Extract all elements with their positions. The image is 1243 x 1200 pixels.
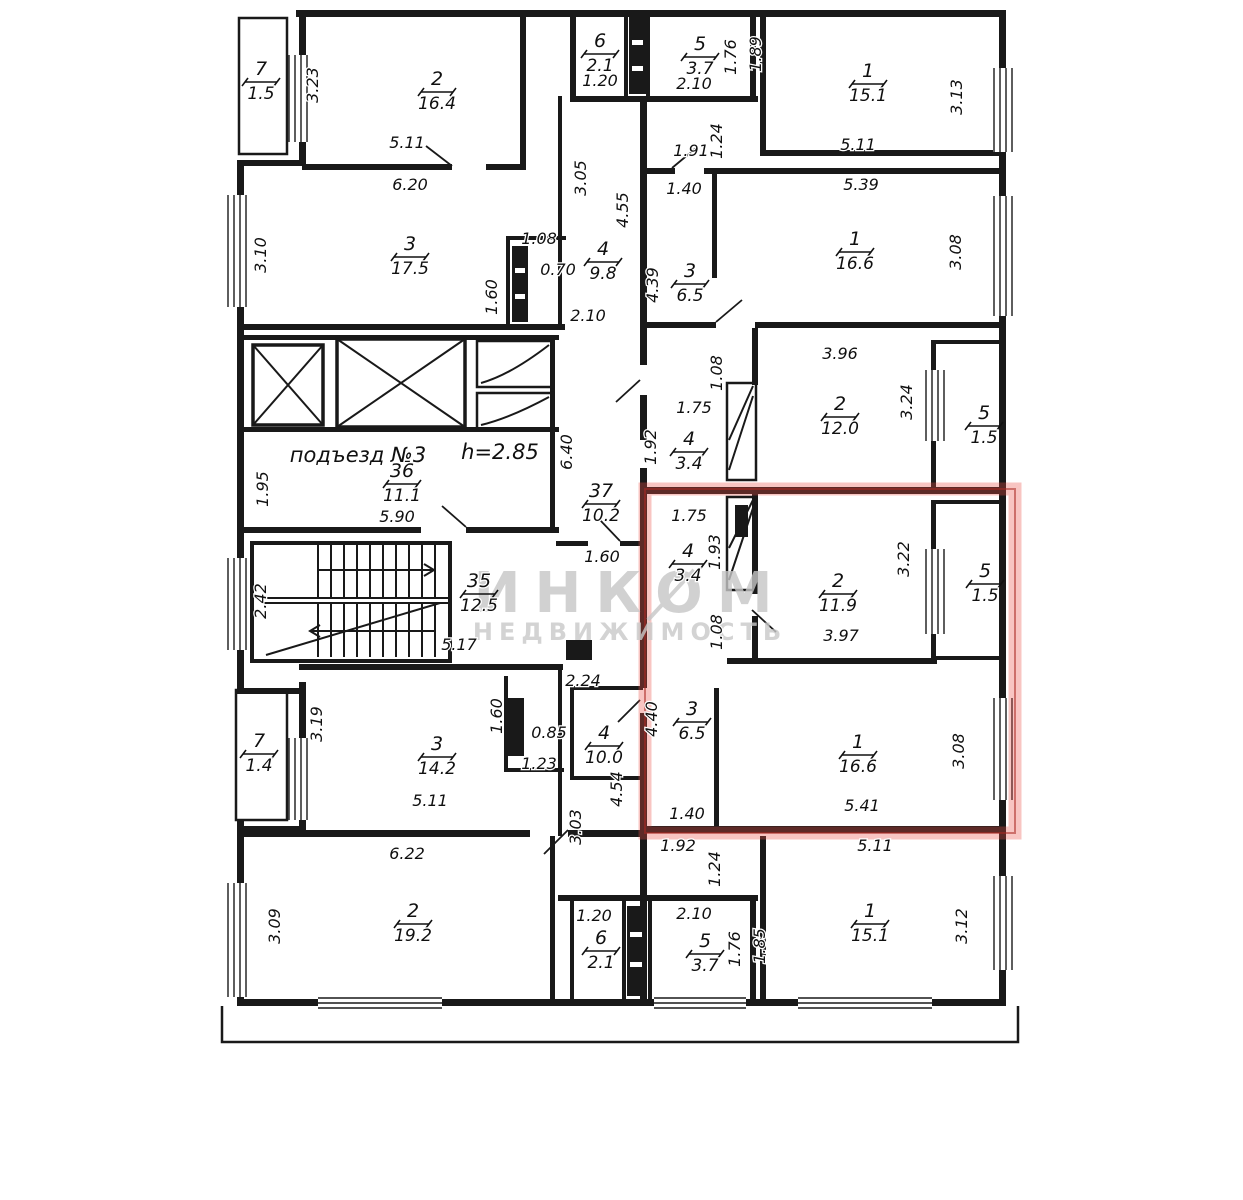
svg-text:5: 5 [979, 560, 991, 582]
room-label: 43.4 [670, 428, 708, 474]
svg-text:2: 2 [832, 570, 844, 592]
entrance-label: подъезд №3 [290, 443, 426, 467]
dimension-label: 3.10 [251, 237, 270, 273]
dimension-label: 1.92 [641, 429, 660, 465]
dimension-label: 1.75 [671, 506, 707, 525]
room-label: 115.1 [851, 900, 889, 946]
dimension-label: 3.13 [947, 79, 966, 115]
dimension-label: 1.92 [660, 836, 696, 855]
watermark-brand: ИНКОМ [474, 561, 787, 626]
dimension-label: 5.11 [389, 133, 425, 152]
svg-text:3.7: 3.7 [691, 956, 718, 976]
svg-text:2.1: 2.1 [587, 953, 614, 973]
svg-text:3: 3 [431, 733, 443, 755]
dimension-label: 5.11 [840, 135, 876, 154]
room-label: 314.2 [418, 733, 456, 779]
dimension-label: 5.39 [843, 175, 879, 194]
dimension-label: 1.76 [721, 39, 740, 75]
watermark-subtitle: НЕДВИЖИМОСТЬ [473, 618, 787, 646]
dimension-label: 1.89 [746, 36, 765, 72]
room-label: 71.4 [240, 730, 278, 776]
svg-text:1: 1 [852, 731, 864, 753]
dimension-label: 2.10 [676, 904, 712, 923]
dimension-label: 1.75 [676, 398, 712, 417]
dimension-label: 1.40 [666, 179, 702, 198]
dimension-label: 4.39 [643, 267, 662, 303]
dimension-label: 5.11 [857, 836, 893, 855]
dimension-label: 3.12 [952, 908, 971, 944]
dimension-label: 6.40 [557, 434, 576, 470]
dimension-label: 3.22 [894, 541, 913, 577]
room-label: 49.8 [584, 238, 622, 284]
room-label: 62.1 [581, 30, 619, 76]
svg-text:4: 4 [683, 428, 695, 450]
dimension-label: 1.85 [750, 928, 769, 964]
dimension-label: 1.40 [669, 804, 705, 823]
dimension-label: 3.05 [571, 160, 590, 196]
room-label: 62.1 [582, 927, 620, 973]
dimension-label: 1.93 [705, 534, 724, 570]
dimension-label: 1.08 [707, 614, 726, 650]
dimension-label: 1.60 [482, 279, 501, 315]
dimension-label: 3.08 [949, 733, 968, 769]
dimension-label: 2.10 [676, 74, 712, 93]
dimension-label: 0.70 [540, 260, 576, 279]
dimension-label: 1.08 [521, 229, 557, 248]
room-label: 36.5 [671, 260, 709, 306]
svg-text:17.5: 17.5 [391, 259, 429, 279]
svg-text:3.4: 3.4 [674, 566, 701, 586]
svg-text:2: 2 [407, 900, 419, 922]
svg-text:37: 37 [589, 480, 613, 502]
svg-text:10.0: 10.0 [585, 748, 623, 768]
svg-text:12.0: 12.0 [821, 419, 859, 439]
room-label: 3710.2 [582, 480, 620, 526]
svg-text:11.1: 11.1 [383, 486, 421, 506]
dimension-label: 5.17 [441, 635, 477, 654]
dimension-label: 1.76 [725, 931, 744, 967]
svg-text:1: 1 [864, 900, 876, 922]
elevator-shaft [253, 345, 323, 425]
dimension-label: 3.96 [822, 344, 858, 363]
svg-text:10.2: 10.2 [582, 506, 620, 526]
room-label: 36.5 [673, 698, 711, 744]
dimension-label: 3.08 [946, 234, 965, 270]
svg-text:1: 1 [849, 228, 861, 250]
svg-text:4: 4 [598, 722, 610, 744]
stair-direction-arrow [310, 625, 434, 637]
dimension-label: 1.24 [707, 123, 726, 159]
svg-text:3: 3 [404, 233, 416, 255]
staircase [250, 541, 452, 663]
floor-plan-drawing: ИНКОМ НЕДВИЖИМОСТЬ 71.5216.462.153.7115.… [0, 0, 1243, 1200]
svg-text:4: 4 [682, 540, 694, 562]
balcony-outline [236, 690, 287, 820]
dimension-label: 5.90 [379, 507, 415, 526]
dimension-label: 6.22 [389, 844, 425, 863]
dimension-label: 1.91 [673, 141, 709, 160]
svg-text:6.5: 6.5 [676, 286, 703, 306]
svg-text:6.5: 6.5 [678, 724, 705, 744]
floor-plan-page: ИНКОМ НЕДВИЖИМОСТЬ 71.5216.462.153.7115.… [0, 0, 1243, 1200]
svg-text:12.5: 12.5 [460, 596, 498, 616]
dimension-label: 2.24 [565, 671, 601, 690]
room-label: 71.5 [242, 58, 280, 104]
svg-text:6: 6 [594, 30, 606, 52]
dimension-label: 1.60 [487, 698, 506, 734]
walls-layer [222, 10, 1018, 1042]
dimension-label: 1.08 [707, 355, 726, 391]
room-label: 410.0 [585, 722, 623, 768]
svg-text:7: 7 [253, 730, 265, 752]
dimension-label: 1.95 [253, 471, 272, 507]
room-label: 53.7 [681, 33, 719, 79]
svg-text:1.5: 1.5 [971, 586, 998, 606]
dimension-label: 1.20 [576, 906, 612, 925]
dimension-label: 3.09 [265, 908, 284, 944]
room-label: 51.5 [966, 560, 1004, 606]
watermark: ИНКОМ НЕДВИЖИМОСТЬ [473, 561, 787, 646]
svg-text:6: 6 [595, 927, 607, 949]
svg-text:1: 1 [862, 60, 874, 82]
svg-text:4: 4 [597, 238, 609, 260]
svg-text:2: 2 [834, 393, 846, 415]
dimension-label: 1.24 [705, 851, 724, 887]
room-label: 211.9 [819, 570, 857, 616]
svg-text:16.6: 16.6 [836, 254, 874, 274]
stair-direction-arrow [318, 564, 434, 576]
ceiling-height-label: h=2.85 [461, 440, 539, 464]
elevator-shaft [337, 339, 465, 427]
dimension-label: 1.23 [521, 754, 557, 773]
svg-text:1.5: 1.5 [247, 84, 274, 104]
svg-text:16.6: 16.6 [839, 757, 877, 777]
room-label: 212.0 [821, 393, 859, 439]
utility-shaft [477, 341, 553, 429]
dimension-label: 3.03 [566, 809, 585, 845]
svg-text:3.4: 3.4 [675, 454, 702, 474]
dimension-label: 3.19 [307, 706, 326, 742]
dimension-label: 3.97 [823, 626, 859, 645]
room-label: 53.7 [686, 930, 724, 976]
room-label: 216.4 [418, 68, 456, 114]
svg-text:3: 3 [686, 698, 698, 720]
svg-text:16.4: 16.4 [418, 94, 456, 114]
svg-text:1.4: 1.4 [245, 756, 272, 776]
dimension-label: 6.20 [392, 175, 428, 194]
svg-text:19.2: 19.2 [394, 926, 432, 946]
dimension-label: 3.24 [897, 384, 916, 420]
svg-text:1.5: 1.5 [970, 428, 997, 448]
dimension-label: 5.41 [844, 796, 880, 815]
room-label: 116.6 [839, 731, 877, 777]
svg-text:14.2: 14.2 [418, 759, 456, 779]
dimension-label: 0.85 [531, 723, 567, 742]
svg-text:2: 2 [431, 68, 443, 90]
dimension-label: 2.10 [570, 306, 606, 325]
dimension-label: 5.11 [412, 791, 448, 810]
svg-text:5: 5 [694, 33, 706, 55]
svg-text:3: 3 [684, 260, 696, 282]
svg-text:9.8: 9.8 [589, 264, 616, 284]
dimension-label: 4.55 [613, 192, 632, 228]
room-label: 116.6 [836, 228, 874, 274]
svg-text:15.1: 15.1 [849, 86, 887, 106]
room-label: 317.5 [391, 233, 429, 279]
dimension-label: 2.42 [251, 583, 270, 619]
dimension-label: 1.60 [584, 547, 620, 566]
svg-text:5: 5 [699, 930, 711, 952]
dimension-label: 3.23 [303, 67, 322, 103]
svg-text:15.1: 15.1 [851, 926, 889, 946]
svg-text:35: 35 [467, 570, 491, 592]
dimension-label: 1.20 [582, 71, 618, 90]
dimension-label: 4.54 [607, 771, 626, 807]
svg-text:7: 7 [255, 58, 267, 80]
room-label: 115.1 [849, 60, 887, 106]
svg-text:11.9: 11.9 [819, 596, 857, 616]
svg-text:5: 5 [978, 402, 990, 424]
room-label: 51.5 [965, 402, 1003, 448]
room-label: 219.2 [394, 900, 432, 946]
dimension-label: 4.40 [642, 701, 661, 737]
